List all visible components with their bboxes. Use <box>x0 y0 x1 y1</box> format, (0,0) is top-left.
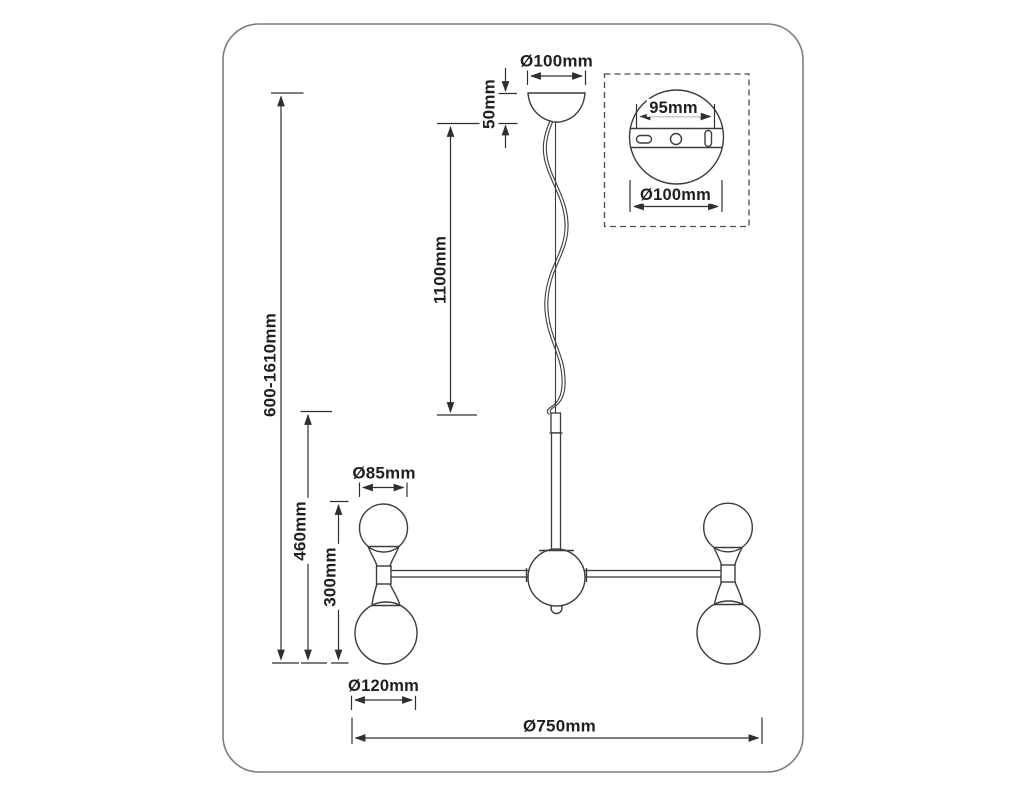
overall-diameter-label: Ø750mm <box>520 716 599 735</box>
right-small-globe <box>704 503 753 552</box>
center-rod <box>550 413 563 550</box>
right-globe-unit <box>697 503 760 664</box>
canopy-diameter-label: Ø100mm <box>517 51 596 70</box>
left-large-globe <box>355 602 417 664</box>
left-small-globe <box>360 504 408 552</box>
large-globe-diameter-label: Ø120mm <box>345 677 422 696</box>
body-height-label: 460mm <box>290 498 309 564</box>
canopy-height-label: 50mm <box>479 76 498 132</box>
right-arm <box>584 571 728 578</box>
detail-plate-width-label: 95mm <box>646 98 701 117</box>
hub-sphere <box>528 549 585 606</box>
arm-unit-height-label: 300mm <box>320 544 339 610</box>
left-arm-socket <box>377 566 392 584</box>
cable-length-label: 1100mm <box>431 232 450 306</box>
overall-height-label: 600-1610mm <box>261 310 280 420</box>
right-large-globe <box>697 601 760 664</box>
line-art-layer <box>0 0 1024 796</box>
cable-connector <box>551 413 561 433</box>
canopy <box>528 93 585 122</box>
detail-canopy-diameter-label: Ø100mm <box>637 185 714 204</box>
suspension-cable <box>543 121 568 415</box>
small-globe-diameter-label: Ø85mm <box>349 464 418 483</box>
left-arm <box>386 571 530 578</box>
blueprint-canvas: Ø100mm 50mm 1100mm 600-1610mm 460mm 300m… <box>0 0 1024 796</box>
center-hub <box>527 549 587 614</box>
left-globe-unit <box>355 504 417 664</box>
right-arm-socket <box>721 565 735 582</box>
